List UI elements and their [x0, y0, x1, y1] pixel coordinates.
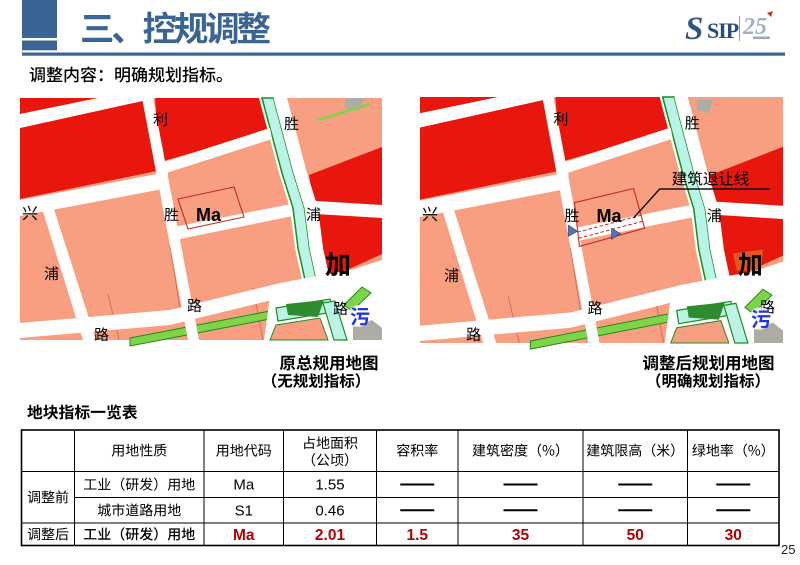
svg-text:30: 30 — [725, 527, 742, 544]
svg-text:Ma: Ma — [233, 527, 255, 544]
svg-text:Ma: Ma — [233, 477, 254, 494]
svg-text:S1: S1 — [235, 502, 253, 519]
svg-text:25: 25 — [742, 14, 767, 40]
svg-text:Ma: Ma — [596, 206, 622, 226]
svg-text:Ma: Ma — [196, 205, 222, 225]
svg-text:2.01: 2.01 — [315, 527, 346, 544]
svg-text:35: 35 — [512, 527, 530, 544]
svg-text:25: 25 — [781, 542, 795, 557]
svg-text:1.55: 1.55 — [315, 477, 344, 494]
svg-text:1.5: 1.5 — [406, 527, 428, 544]
svg-text:50: 50 — [627, 527, 644, 544]
svg-text:SIP: SIP — [707, 18, 739, 43]
svg-text:S: S — [685, 11, 703, 47]
svg-text:0.46: 0.46 — [315, 502, 344, 519]
